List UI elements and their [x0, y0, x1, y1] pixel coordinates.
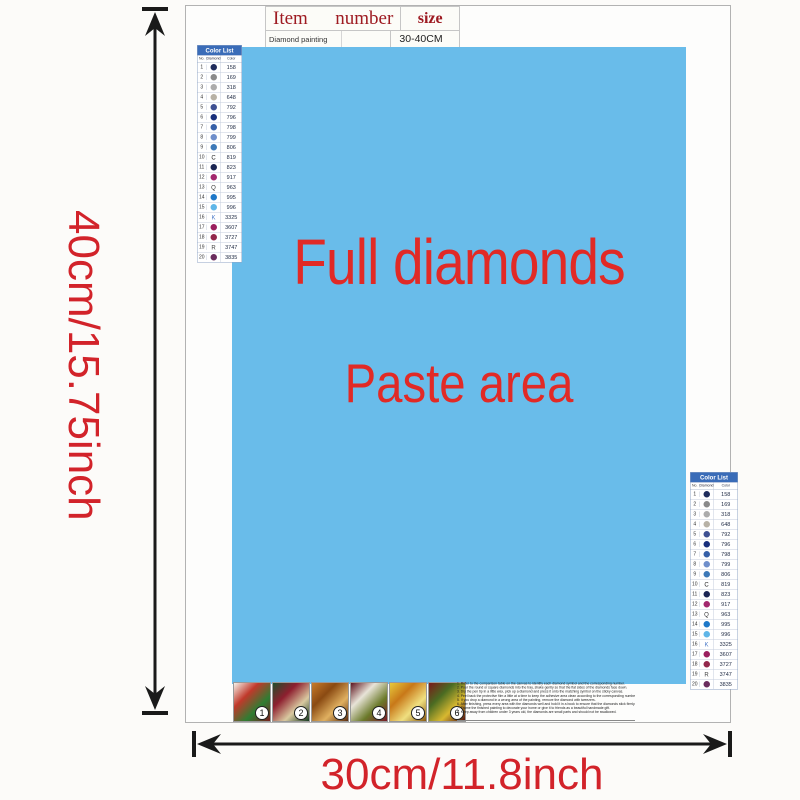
product-name: Diamond painting	[266, 35, 341, 44]
dmc-code: 995	[221, 194, 242, 200]
diamond-symbol	[207, 223, 222, 233]
dmc-code: 798	[221, 124, 242, 130]
item-header-label: Item	[273, 8, 308, 30]
diamond-symbol	[700, 570, 715, 580]
size-value: 30-40CM	[390, 31, 451, 47]
diamond-symbol	[207, 63, 222, 73]
diamond-symbol	[700, 510, 715, 520]
diamond-symbol	[207, 93, 222, 103]
diamond-symbol	[207, 83, 222, 93]
color-row: 7798	[198, 123, 242, 133]
color-row: 19R3747	[198, 243, 242, 253]
diamond-symbol	[207, 173, 222, 183]
dmc-code: 806	[714, 571, 738, 577]
step-thumbnail: 5	[389, 682, 427, 722]
color-row: 8799	[691, 560, 738, 570]
color-row: 19R3747	[691, 670, 738, 680]
paste-area: Full diamonds Paste area	[232, 47, 686, 684]
color-list-column-headers: No.DiamondColor	[198, 56, 242, 63]
diamond-painting-size-diagram: 40cm/15.75inch Item number size Diamond …	[0, 0, 800, 800]
dmc-code: 3747	[221, 244, 242, 250]
dmc-code: 3747	[714, 671, 738, 677]
instruction-line: 8. Keep away from children under 3 years…	[457, 711, 635, 715]
dmc-code: 318	[221, 84, 242, 90]
color-row: 1158	[691, 490, 738, 500]
color-row: 183727	[198, 233, 242, 243]
diamond-symbol: K	[207, 213, 222, 223]
diamond-symbol	[700, 540, 715, 550]
dmc-code: 963	[714, 611, 738, 617]
diamond-symbol	[700, 680, 715, 690]
diamond-symbol: Q	[700, 610, 715, 620]
dmc-code: 792	[714, 531, 738, 537]
step-thumbnail: 3	[311, 682, 349, 722]
diamond-symbol: C	[700, 580, 715, 590]
dmc-code: 3325	[714, 641, 738, 647]
dmc-code: 169	[714, 501, 738, 507]
color-row: 2169	[691, 500, 738, 510]
dmc-code: 648	[221, 94, 242, 100]
diamond-symbol	[207, 143, 222, 153]
color-row: 9806	[198, 143, 242, 153]
number-cell-empty	[341, 31, 390, 47]
dmc-code: 318	[714, 511, 738, 517]
step-number-badge: 5	[411, 706, 425, 720]
diamond-symbol	[207, 123, 222, 133]
step-thumbnails: 123456	[233, 682, 466, 720]
diamond-symbol	[700, 600, 715, 610]
step-thumbnail: 1	[233, 682, 271, 722]
diamond-symbol	[207, 253, 222, 263]
diamond-symbol	[700, 550, 715, 560]
diamond-symbol	[700, 500, 715, 510]
color-row: 173607	[198, 223, 242, 233]
color-row: 13Q963	[198, 183, 242, 193]
diamond-symbol: Q	[207, 183, 222, 193]
color-list-left: Color ListNo.DiamondColor115821693318464…	[197, 45, 287, 480]
diamond-symbol	[207, 103, 222, 113]
step-number-badge: 1	[255, 706, 269, 720]
dmc-code: 995	[714, 621, 738, 627]
color-row: 6796	[198, 113, 242, 123]
color-row: 5792	[198, 103, 242, 113]
diamond-symbol	[700, 530, 715, 540]
color-row: 203835	[198, 253, 242, 263]
color-row: 9806	[691, 570, 738, 580]
dmc-code: 3835	[714, 681, 738, 687]
dmc-code: 798	[714, 551, 738, 557]
item-info-table: Item number size Diamond painting 30-40C…	[265, 6, 460, 48]
diamond-symbol	[207, 163, 222, 173]
color-row: 4648	[198, 93, 242, 103]
color-row: 6796	[691, 540, 738, 550]
diamond-symbol	[207, 203, 222, 213]
color-row: 203835	[691, 680, 738, 690]
dmc-code: 3325	[221, 214, 242, 220]
color-row: 1158	[198, 63, 242, 73]
diamond-symbol	[207, 193, 222, 203]
color-row: 14995	[691, 620, 738, 630]
dmc-code: 3607	[714, 651, 738, 657]
dmc-code: 158	[714, 491, 738, 497]
dmc-code: 917	[221, 174, 242, 180]
dmc-code: 799	[221, 134, 242, 140]
item-table-row: Diamond painting 30-40CM	[266, 30, 459, 47]
dmc-code: 819	[714, 581, 738, 587]
color-row: 16K3325	[691, 640, 738, 650]
dmc-code: 158	[221, 64, 242, 70]
dmc-code: 996	[714, 631, 738, 637]
step-number-badge: 4	[372, 706, 386, 720]
color-list-title: Color List	[691, 473, 738, 483]
color-row: 14995	[198, 193, 242, 203]
item-table-header: Item number size	[266, 7, 459, 30]
diamond-symbol	[700, 560, 715, 570]
color-row: 11823	[198, 163, 242, 173]
dmc-code: 806	[221, 144, 242, 150]
color-row: 16K3325	[198, 213, 242, 223]
instructions-block: 1. Refer to the comparison table on the …	[457, 682, 635, 721]
color-row: 2169	[198, 73, 242, 83]
painting-canvas: Item number size Diamond painting 30-40C…	[185, 5, 731, 723]
dmc-code: 963	[221, 184, 242, 190]
color-row: 3318	[198, 83, 242, 93]
dmc-code: 796	[714, 541, 738, 547]
dmc-code: 796	[221, 114, 242, 120]
color-list-title: Color List	[198, 46, 242, 56]
diamond-symbol	[207, 73, 222, 83]
number-header-label: number	[335, 8, 393, 30]
color-list-column-headers: No.DiamondColor	[691, 483, 738, 490]
dmc-code: 648	[714, 521, 738, 527]
color-row: 13Q963	[691, 610, 738, 620]
step-thumbnail: 4	[350, 682, 388, 722]
color-row: 7798	[691, 550, 738, 560]
diamond-symbol	[700, 630, 715, 640]
dmc-code: 917	[714, 601, 738, 607]
color-row: 5792	[691, 530, 738, 540]
diamond-symbol	[700, 650, 715, 660]
color-row: 12917	[691, 600, 738, 610]
dmc-code: 823	[221, 164, 242, 170]
dmc-code: 823	[714, 591, 738, 597]
color-row: 12917	[198, 173, 242, 183]
dmc-code: 3607	[221, 224, 242, 230]
height-dimension-label: 40cm/15.75inch	[52, 192, 114, 538]
diamond-symbol	[700, 490, 715, 500]
diamond-symbol	[700, 590, 715, 600]
dmc-code: 819	[221, 154, 242, 160]
size-header-label: size	[400, 7, 459, 30]
dmc-code: 996	[221, 204, 242, 210]
diamond-symbol: K	[700, 640, 715, 650]
step-number-badge: 2	[294, 706, 308, 720]
instructions-text: 1. Refer to the comparison table on the …	[457, 682, 635, 715]
diamond-symbol	[207, 233, 222, 243]
paste-area-title: Full diamonds	[264, 225, 654, 299]
step-thumbnail: 2	[272, 682, 310, 722]
color-row: 3318	[691, 510, 738, 520]
width-dimension-label: 30cm/11.8inch	[252, 750, 672, 800]
diamond-symbol	[207, 113, 222, 123]
height-arrow	[138, 6, 172, 718]
color-row: 15996	[198, 203, 242, 213]
diamond-symbol	[207, 133, 222, 143]
color-row: 10C819	[691, 580, 738, 590]
dmc-code: 3835	[221, 254, 242, 260]
color-row: 173607	[691, 650, 738, 660]
dmc-code: 792	[221, 104, 242, 110]
color-row: 10C819	[198, 153, 242, 163]
dmc-code: 169	[221, 74, 242, 80]
step-number-badge: 3	[333, 706, 347, 720]
color-row: 15996	[691, 630, 738, 640]
color-row: 4648	[691, 520, 738, 530]
dmc-code: 799	[714, 561, 738, 567]
diamond-symbol	[700, 660, 715, 670]
color-row: 8799	[198, 133, 242, 143]
diamond-symbol: C	[207, 153, 222, 163]
color-row: 183727	[691, 660, 738, 670]
diamond-symbol	[700, 620, 715, 630]
paste-area-subtitle: Paste area	[264, 351, 654, 415]
color-row: 11823	[691, 590, 738, 600]
diamond-symbol: R	[700, 670, 715, 680]
dmc-code: 3727	[221, 234, 242, 240]
diamond-symbol: R	[207, 243, 222, 253]
diamond-symbol	[700, 520, 715, 530]
dmc-code: 3727	[714, 661, 738, 667]
